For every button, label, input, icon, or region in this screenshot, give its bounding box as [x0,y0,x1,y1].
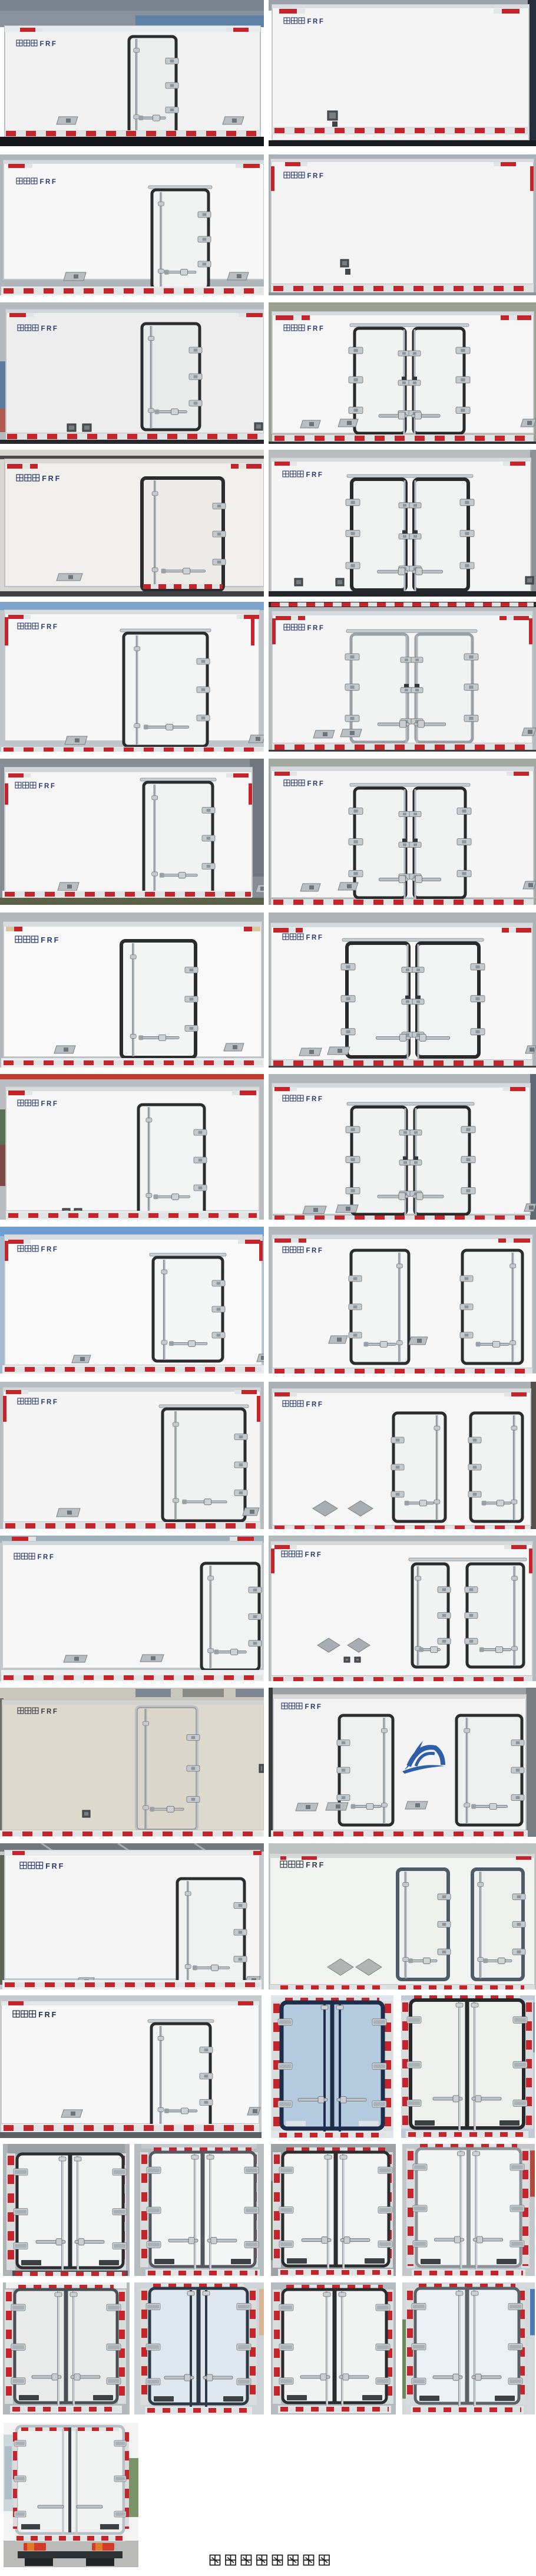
svg-text:FRF: FRF [42,475,61,483]
svg-text:FRF: FRF [38,1554,55,1561]
svg-text:FRF: FRF [305,1551,323,1559]
svg-text:FRF: FRF [41,936,60,944]
svg-text:FRF: FRF [41,325,59,332]
svg-text:FRF: FRF [306,1247,324,1254]
svg-text:FRF: FRF [305,1704,323,1711]
svg-text:FRF: FRF [307,780,325,788]
svg-text:FRF: FRF [40,179,58,186]
svg-text:FRF: FRF [307,625,325,632]
svg-text:FRF: FRF [41,1399,59,1406]
svg-text:FRF: FRF [307,325,325,332]
svg-text:FRF: FRF [307,18,325,25]
svg-text:FRF: FRF [40,41,58,48]
svg-text:FRF: FRF [306,1096,324,1103]
svg-text:FRF: FRF [38,2011,58,2019]
svg-text:FRF: FRF [307,173,325,180]
svg-text:FRF: FRF [41,624,59,631]
svg-text:FRF: FRF [306,934,324,941]
svg-text:FRF: FRF [41,1101,59,1108]
svg-text:FRF: FRF [306,1401,324,1408]
svg-text:FRF: FRF [41,1246,59,1253]
svg-text:FRF: FRF [306,472,324,479]
svg-text:FRF: FRF [306,1861,325,1869]
svg-text:FRF: FRF [39,783,57,790]
svg-text:FRF: FRF [41,1708,59,1715]
svg-text:FRF: FRF [45,1862,65,1870]
